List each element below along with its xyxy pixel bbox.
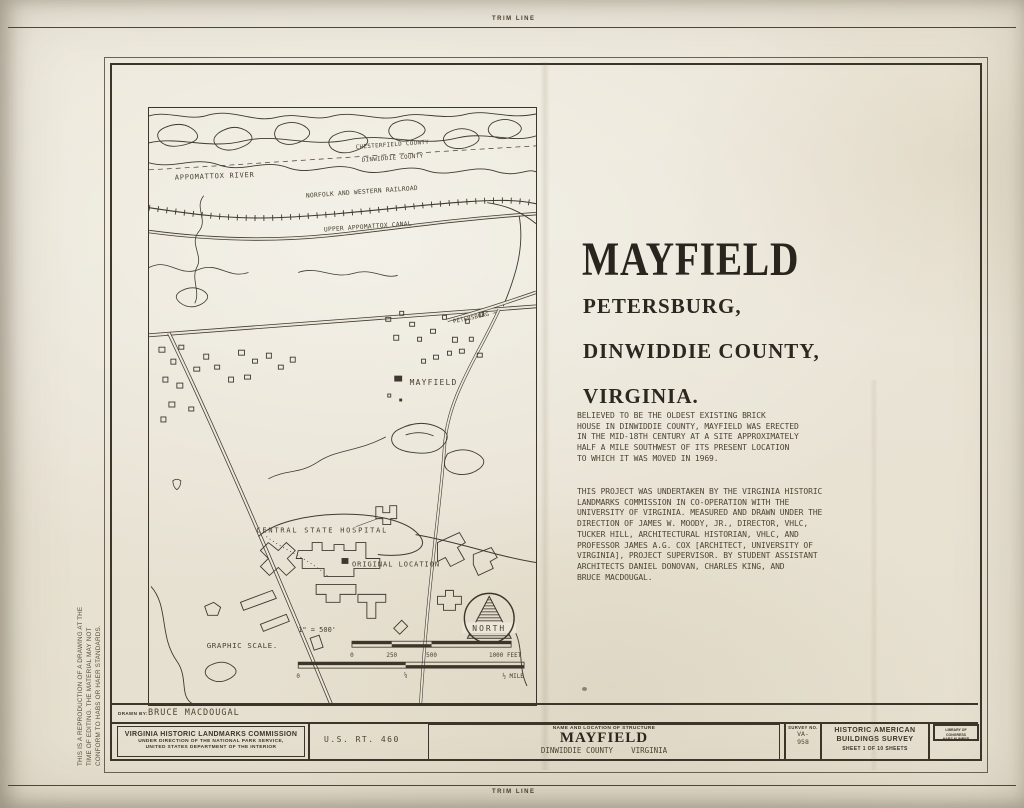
scale-mile-quarter: ¼ xyxy=(404,672,408,679)
original-location-marker xyxy=(342,558,348,563)
map-label-county-bottom: DINWIDDIE COUNTY xyxy=(362,153,424,163)
archival-disclaimer-note: THIS IS A REPRODUCTION OF A DRAWING AT T… xyxy=(76,578,103,766)
library-of-congress-stamp: LIBRARY OF CONGRESS HABS NUMBER xyxy=(933,724,979,741)
mayfield-marker xyxy=(395,376,402,381)
trim-line-top-label: TRIM LINE xyxy=(492,16,536,22)
habs-box: HISTORIC AMERICAN BUILDINGS SURVEY SHEET… xyxy=(822,727,928,752)
agency-subtitle: UNDER DIRECTION OF THE NATIONAL PARK SER… xyxy=(118,739,304,750)
railroad-canal-group xyxy=(149,200,536,306)
map-label-railroad: NORFOLK AND WESTERN RAILROAD xyxy=(306,185,418,200)
agency-name: VIRGINIA HISTORIC LANDMARKS COMMISSION xyxy=(118,731,304,738)
scale-feet-1000: 1000 FEET xyxy=(489,652,522,659)
scale-feet-500: 500 xyxy=(426,652,437,659)
scale-ratio: 1" = 500' xyxy=(298,626,336,634)
trim-line-bottom xyxy=(8,785,1016,786)
site-map-frame: APPOMATTOX RIVER CHESTERFIELD COUNTY DIN… xyxy=(148,107,537,706)
drawn-by-label: DRAWN BY: xyxy=(118,711,148,716)
river-group xyxy=(149,113,536,174)
trim-line-bottom-label: TRIM LINE xyxy=(492,789,536,795)
drawn-by-name: BRUCE MACDOUGAL xyxy=(148,708,240,718)
agency-box: VIRGINIA HISTORIC LANDMARKS COMMISSION U… xyxy=(117,726,305,757)
structure-name-box: NAME AND LOCATION OF STRUCTURE MAYFIELD … xyxy=(428,724,780,761)
divider-loc xyxy=(928,722,930,761)
site-map: APPOMATTOX RIVER CHESTERFIELD COUNTY DIN… xyxy=(149,108,536,705)
survey-number-box: SURVEY NO. VA- 958 xyxy=(786,725,820,746)
scanned-sheet-photo: TRIM LINE TRIM LINE THIS IS A REPRODUCTI… xyxy=(0,0,1024,808)
structure-name: MAYFIELD xyxy=(429,731,779,746)
trim-line-top xyxy=(8,27,1016,28)
north-arrow: NORTH xyxy=(462,593,516,643)
description-paragraph-1: BELIEVED TO BE THE OLDEST EXISTING BRICK… xyxy=(577,411,877,465)
sheet-title: MAYFIELD xyxy=(582,236,799,284)
map-label-original-location: ORIGINAL LOCATION xyxy=(352,560,440,568)
scale-mile-half: ½ MILE xyxy=(502,673,524,680)
scale-title: GRAPHIC SCALE. xyxy=(207,641,278,650)
sheet-subtitle: PETERSBURG, DINWIDDIE COUNTY, VIRGINIA. xyxy=(583,284,820,419)
divider-route xyxy=(308,722,310,761)
north-arrow-label: NORTH xyxy=(472,624,506,633)
structure-county: DINWIDDIE COUNTY xyxy=(541,746,613,755)
description-paragraph-2: THIS PROJECT WAS UNDERTAKEN BY THE VIRGI… xyxy=(577,487,877,583)
scale-mile-0: 0 xyxy=(296,673,300,680)
map-label-river: APPOMATTOX RIVER xyxy=(175,171,255,182)
route-label: U.S. RT. 460 xyxy=(324,735,400,744)
scale-feet-250: 250 xyxy=(386,652,397,659)
scale-feet-0: 0 xyxy=(350,652,354,659)
habs-title: HISTORIC AMERICAN BUILDINGS SURVEY xyxy=(822,727,928,744)
map-label-hospital: CENTRAL STATE HOSPITAL xyxy=(256,527,388,535)
map-label-mayfield: MAYFIELD xyxy=(410,378,458,387)
structure-state: VIRGINIA xyxy=(631,746,667,755)
map-label-county-top: CHESTERFIELD COUNTY xyxy=(356,140,430,151)
sheet-count: SHEET 1 OF 10 SHEETS xyxy=(822,746,928,752)
map-labels-group: APPOMATTOX RIVER CHESTERFIELD COUNTY DIN… xyxy=(175,140,498,569)
survey-number-value: VA- 958 xyxy=(786,730,820,746)
buildings-group xyxy=(159,311,497,650)
structure-location: DINWIDDIE COUNTY VIRGINIA xyxy=(429,746,779,755)
title-block: DRAWN BY: BRUCE MACDOUGAL VIRGINIA HISTO… xyxy=(112,703,978,759)
